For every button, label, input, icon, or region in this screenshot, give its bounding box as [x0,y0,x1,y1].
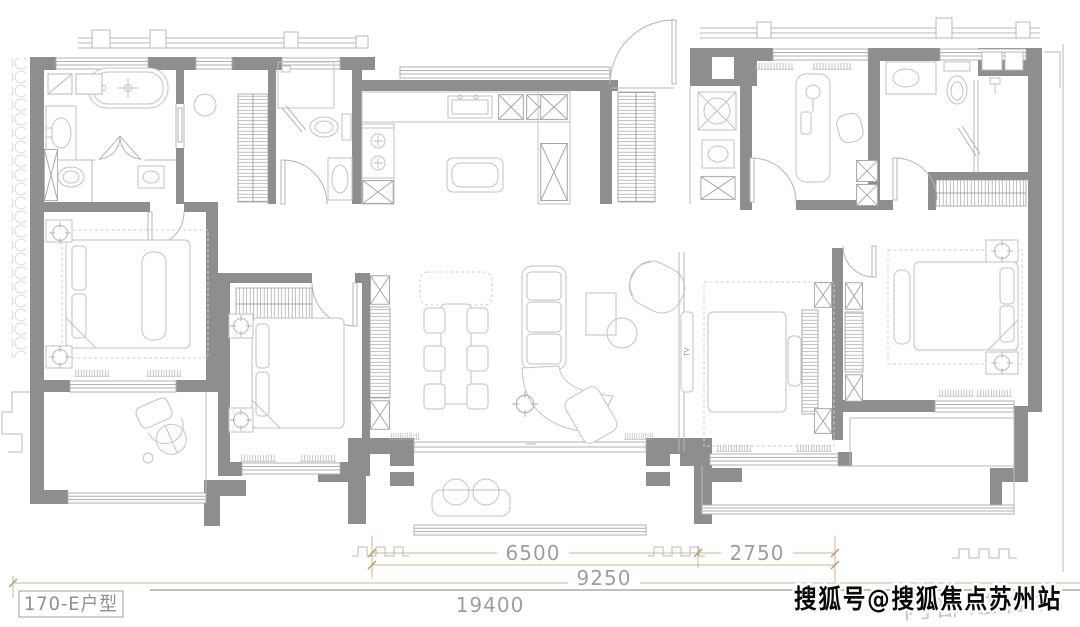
floor-plan-drawing: TV [0,0,1080,627]
study-door [750,158,796,202]
dimension-19400: 19400 [456,593,525,617]
window [68,493,206,503]
window [56,58,148,69]
room-dressing [194,94,268,202]
balcony-bench [432,479,510,516]
curtain [976,390,1012,396]
closet [370,307,390,398]
stool [194,94,216,116]
desk [796,74,830,182]
vanity-sink [886,62,936,94]
watermarks: 内部过程稿 搜狐号@搜狐焦点苏州站 [794,584,1068,625]
base-cabinet [363,181,393,204]
nightstand [814,409,831,434]
room-bedroom3 [845,180,1026,401]
bed [894,262,1018,350]
window [773,49,868,60]
duct-niche [982,52,1002,70]
cabinet [701,177,735,200]
closet-cabinet [371,401,390,430]
toilet [310,114,351,140]
bed [252,318,344,428]
curtain [146,370,182,376]
room-study [754,63,877,206]
shaft-cabinet [44,149,57,200]
window [400,67,610,78]
dimension-6500: 6500 [506,541,561,565]
unit-label-text: 170-E户型 [24,593,118,615]
cabinet [857,161,878,182]
room-master-bedroom [46,220,208,376]
desk-chair [835,111,865,144]
nightstand [814,283,831,308]
balcony-rail [702,505,1014,514]
window [242,463,340,474]
bedroom3-door [843,246,876,277]
window [70,381,176,392]
room-bathroom2 [278,62,352,200]
laundry-sink [702,140,734,168]
hall-cabinet [618,92,655,202]
window [282,58,340,69]
window [935,401,1014,412]
balcony-rail [414,525,646,535]
wash-basin [328,158,352,200]
closet-cabinet [845,375,862,402]
curtain [938,390,974,396]
room-kitchen [362,92,570,204]
shaft-opening [712,57,734,79]
room-foyer [618,92,655,202]
entry-door [610,20,676,88]
curtain [300,455,336,461]
sideboard [420,272,492,305]
window [710,454,838,465]
wash-basin [138,166,164,188]
coffee-table [586,293,616,335]
window [196,58,232,69]
column-left [318,438,414,524]
closet [845,312,863,372]
sliding-door [414,442,646,452]
bed [66,240,190,348]
curtain [240,455,276,461]
dimension-9250: 9250 [577,566,632,590]
upper-cabinet [499,95,524,120]
lounge-chair [134,394,194,462]
double-doors [99,136,141,160]
armchair [622,254,692,320]
dimension-2750: 2750 [730,541,785,565]
curtain [754,63,794,69]
tall-cabinet [541,144,568,201]
room-living-dining [390,254,692,447]
unit-label: 170-E户型 [19,591,123,617]
publisher-watermark: 搜狐号@搜狐焦点苏州站 [794,584,1062,615]
stove [362,128,394,178]
daybed [708,310,818,414]
kitchen-island [447,158,503,192]
scalloped-facade-strip [11,58,26,358]
closet-cabinet [371,276,390,305]
tv-label: TV [683,347,691,357]
floor-plan-page: TV [0,0,1080,627]
kitchen-sink [448,95,492,118]
toilet [944,62,970,104]
curtain [812,63,852,69]
washing-machine [698,92,736,130]
room-laundry [690,86,736,204]
room-master-bathroom [44,68,176,202]
closet-cabinet [845,283,862,310]
room-bathroom3 [886,52,1023,172]
shower-glass-door [282,106,306,132]
nightstand [46,220,72,242]
curtain [74,370,110,376]
room-family: TV [679,252,834,452]
bath1-pocket-door [176,104,184,148]
cabinet [857,185,878,206]
tall-cabinet [541,95,568,120]
bath2-door [281,160,327,204]
